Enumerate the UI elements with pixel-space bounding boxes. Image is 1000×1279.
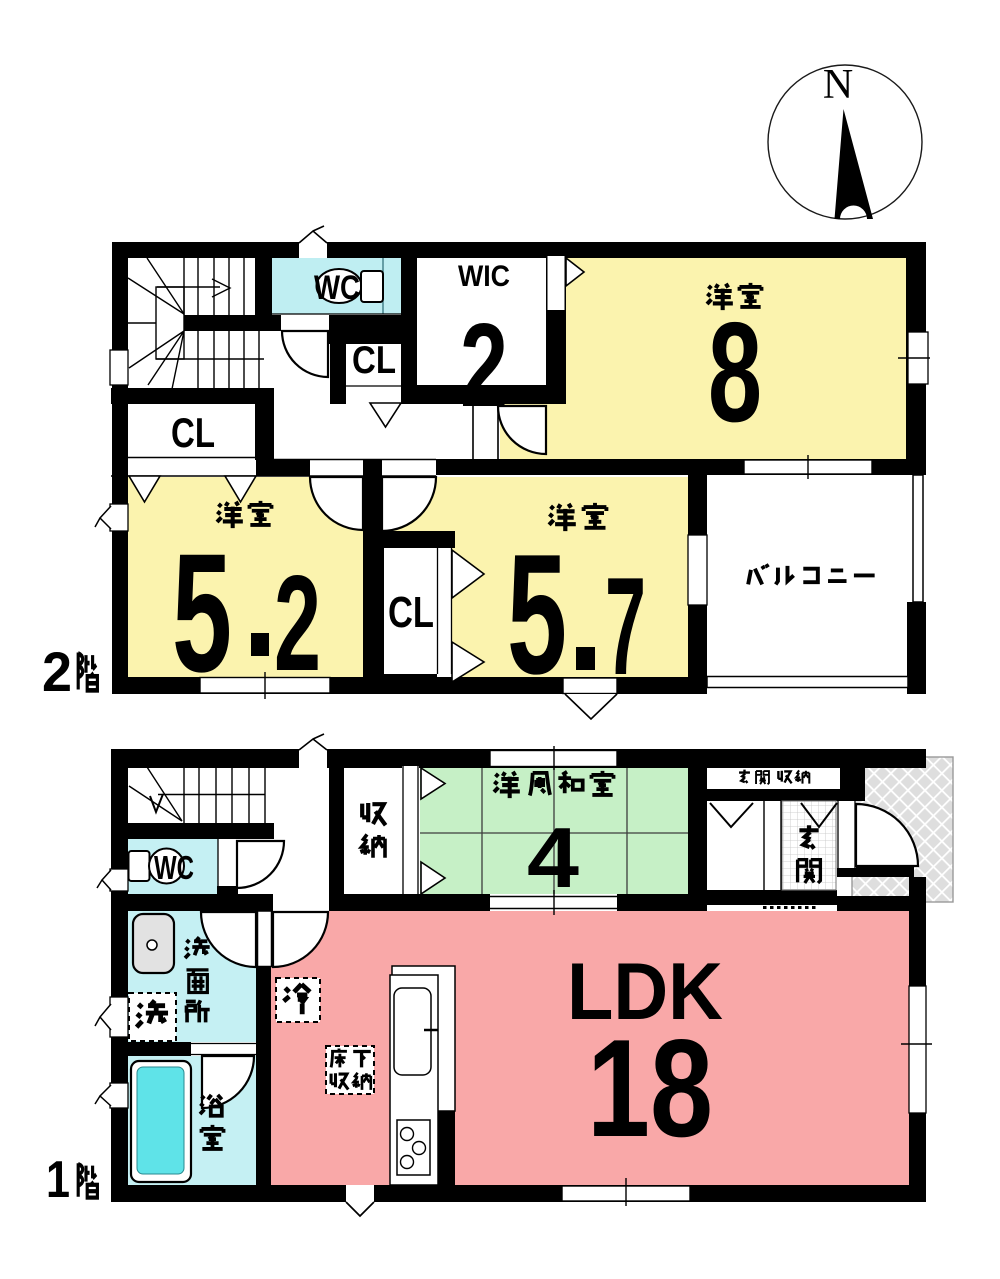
- svg-text:CL: CL: [171, 409, 215, 456]
- svg-text:5: 5: [172, 518, 232, 707]
- svg-text:5: 5: [507, 519, 567, 710]
- svg-text:WC: WC: [154, 849, 194, 886]
- svg-text:8: 8: [708, 293, 762, 452]
- svg-text:18: 18: [587, 1011, 713, 1166]
- svg-text:CL: CL: [352, 339, 396, 382]
- svg-text:CL: CL: [388, 588, 434, 637]
- svg-text:1: 1: [46, 1151, 70, 1209]
- svg-text:2: 2: [42, 640, 72, 703]
- svg-text:WIC: WIC: [458, 260, 510, 293]
- svg-text:N: N: [823, 62, 853, 108]
- svg-text:2: 2: [274, 547, 321, 699]
- svg-text:7: 7: [605, 549, 646, 704]
- svg-text:2: 2: [460, 299, 508, 432]
- svg-text:WC: WC: [314, 269, 360, 307]
- svg-text:4: 4: [527, 811, 579, 906]
